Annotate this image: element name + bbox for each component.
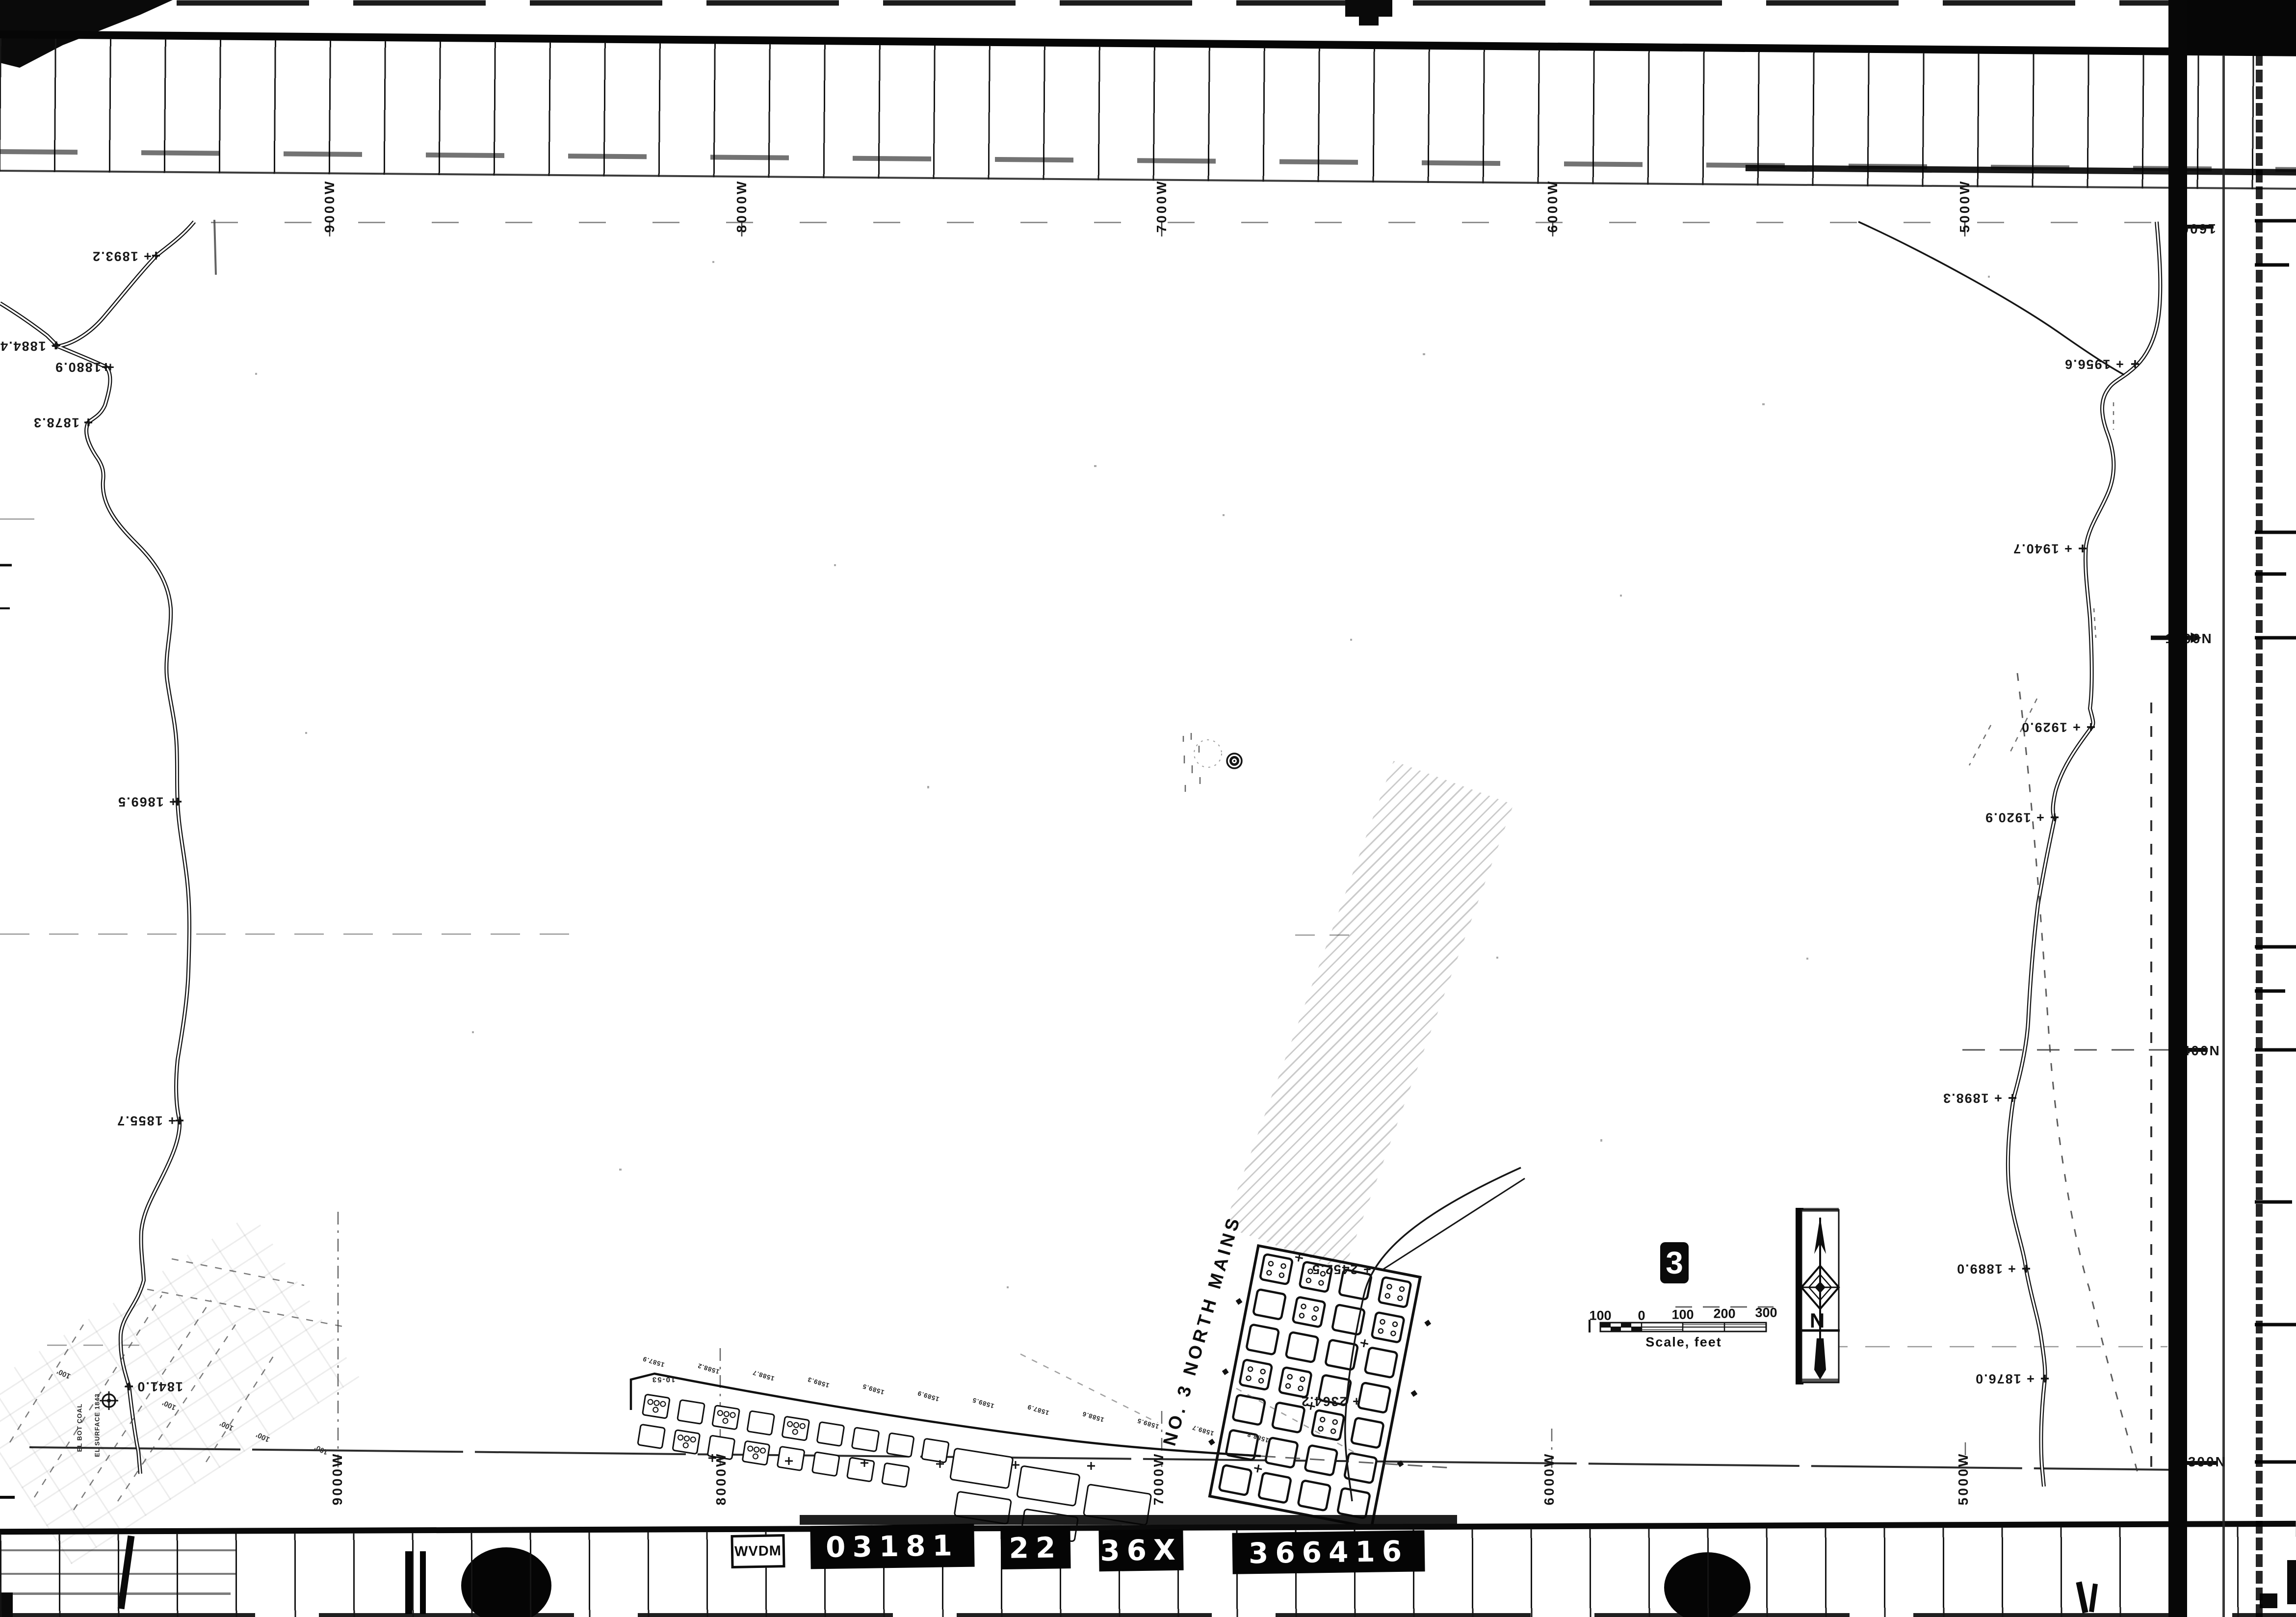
neatline-top xyxy=(211,222,2171,223)
drill-note-line1: EL SURFACE 1843 xyxy=(94,1393,101,1457)
scale-tick-label: 100 xyxy=(1671,1307,1694,1323)
film-id-box-3: 36X xyxy=(1098,1529,1183,1571)
drill-note-line2: EL BOT COAL xyxy=(76,1404,83,1452)
film-edge-speckle-line xyxy=(2256,0,2263,1617)
spot-elevation-label: + 1893.2 xyxy=(92,249,152,264)
grid-label-top-9000w: 9000W xyxy=(322,180,338,233)
workings-spot-2452: + 2452.5 xyxy=(1311,1262,1371,1277)
spot-elevation-label: + 1889.0 xyxy=(1956,1261,2016,1277)
scale-tick-label: 0 xyxy=(1638,1308,1645,1324)
borehole-center xyxy=(1183,733,1242,792)
grid-label-bottom-5000w: 5000W xyxy=(1956,1452,1971,1506)
spot-elevation-label: + 1940.7 xyxy=(2012,541,2072,556)
film-id-box-2: 22 xyxy=(1000,1526,1070,1569)
grid-label-bottom-7000w: 7000W xyxy=(1151,1452,1167,1506)
north-letter: N xyxy=(1810,1309,1825,1332)
mine-map-scan: 9000W 8000W 7000W 6000W 5000W 9000W 8000… xyxy=(0,0,2296,1617)
neatline-bottom xyxy=(29,220,2174,1470)
film-agency-label: WVDM xyxy=(731,1534,785,1568)
grid-label-bottom-8000w: 8000W xyxy=(713,1452,729,1506)
spot-elevation-label: + 1884.4 xyxy=(0,339,59,354)
grid-label-top-8000w: 8000W xyxy=(734,180,750,233)
scale-tick-label: 100 xyxy=(1589,1308,1611,1324)
north-arrow xyxy=(1796,1208,1840,1384)
film-edge-bar xyxy=(2168,0,2187,1617)
workings-spot-2364: + 2364.2 xyxy=(1301,1394,1360,1409)
grid-label-top-7000w: 7000W xyxy=(1154,180,1170,233)
south-corner-label: 10-53 xyxy=(652,1376,675,1384)
scale-tick-label: 300 xyxy=(1755,1305,1777,1321)
scale-tick-label: 200 xyxy=(1713,1306,1735,1322)
spot-elevation-label: + 1898.3 xyxy=(1942,1091,2002,1106)
film-edge-line xyxy=(2222,0,2225,1617)
spot-elevation-label: 1841.0 + xyxy=(123,1379,183,1394)
spot-elevation-label: + 1929.0 xyxy=(2021,720,2081,735)
spot-elevation-label: + 1920.9 xyxy=(1984,810,2044,825)
film-id-box-4: 366416 xyxy=(1232,1530,1425,1574)
spot-elevation-label: + 1855.7 xyxy=(116,1113,176,1128)
spot-elevation-label: + 1869.5 xyxy=(117,794,177,809)
film-ruler-band-top xyxy=(0,30,2296,190)
film-corner-blob xyxy=(2187,0,2296,55)
spot-elevation-label: + 1876.0 xyxy=(1975,1371,2035,1386)
grid-label-bottom-6000w: 6000W xyxy=(1541,1452,1557,1506)
spot-elevation-label: + 1878.3 xyxy=(33,415,93,430)
film-id-box-1: 03181 xyxy=(810,1524,974,1569)
grid-label-bottom-9000w: 9000W xyxy=(330,1452,345,1506)
grid-label-top-6000w: 6000W xyxy=(1545,180,1561,233)
spot-elevation-label: + 1880.9 xyxy=(54,360,114,375)
film-edge-dashed-line xyxy=(2150,702,2152,1467)
spot-elevation-label: + 1956.6 xyxy=(2064,357,2124,372)
right-stream xyxy=(1858,222,2160,1487)
scale-caption: Scale, feet xyxy=(1645,1335,1722,1350)
grid-label-top-5000w: 5000W xyxy=(1957,180,1973,233)
scan-speckles xyxy=(255,261,1990,1288)
sheet-number-badge: 3 xyxy=(1660,1242,1689,1283)
